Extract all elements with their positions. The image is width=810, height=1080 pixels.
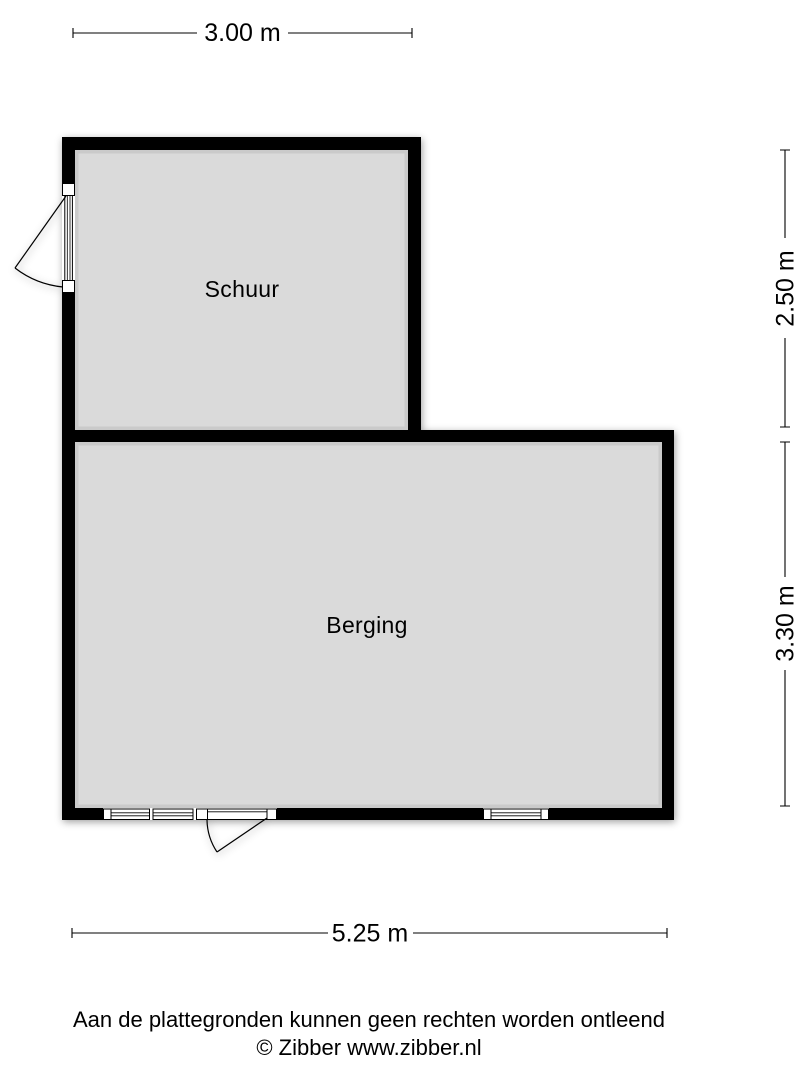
floorplan-canvas: Schuur Berging 3.00 m 2.50 m 3.30 m: [0, 0, 810, 1080]
berging-jamb-left: [104, 809, 112, 820]
schuur-door-leaf-closed: [65, 196, 73, 281]
dimension-right-lower-label: 3.30 m: [772, 585, 800, 661]
schuur-door-swing-arc: [15, 268, 63, 287]
dimension-right-upper: 2.50 m: [772, 150, 800, 427]
berging-door-jamb-left: [197, 809, 208, 820]
dimension-right-upper-label: 2.50 m: [772, 250, 800, 326]
berging-window-3: [491, 809, 541, 820]
schuur-door-open-leaf: [15, 196, 66, 268]
berging-window-3-jamb-right: [541, 809, 549, 820]
berging-door-jamb-right: [267, 809, 277, 820]
room-label-schuur: Schuur: [205, 276, 280, 302]
schuur-door-jamb-bottom: [63, 281, 75, 293]
berging-door-leaf-closed: [208, 809, 268, 820]
footer-disclaimer: Aan de plattegronden kunnen geen rechten…: [73, 1007, 665, 1032]
room-label-berging: Berging: [326, 612, 407, 638]
footer-copyright: © Zibber www.zibber.nl: [256, 1035, 481, 1060]
dimension-bottom-label: 5.25 m: [332, 920, 408, 948]
schuur-door-jamb-top: [63, 184, 75, 196]
berging-door-swing-arc: [207, 820, 217, 852]
dimension-top: 3.00 m: [73, 19, 412, 47]
berging-window-1: [111, 809, 150, 820]
building: [15, 137, 674, 852]
footer: Aan de plattegronden kunnen geen rechten…: [73, 1007, 665, 1060]
floorplan-page: Schuur Berging 3.00 m 2.50 m 3.30 m: [0, 0, 810, 1080]
dimension-right-lower: 3.30 m: [772, 442, 800, 806]
floor-area: [62, 137, 674, 820]
schuur-door: [15, 183, 75, 293]
berging-window-2: [153, 809, 193, 820]
berging-window-3-jamb-left: [484, 809, 492, 820]
dimension-bottom: 5.25 m: [72, 920, 667, 948]
dimension-top-label: 3.00 m: [204, 19, 280, 47]
berging-door-open-leaf: [217, 818, 267, 852]
